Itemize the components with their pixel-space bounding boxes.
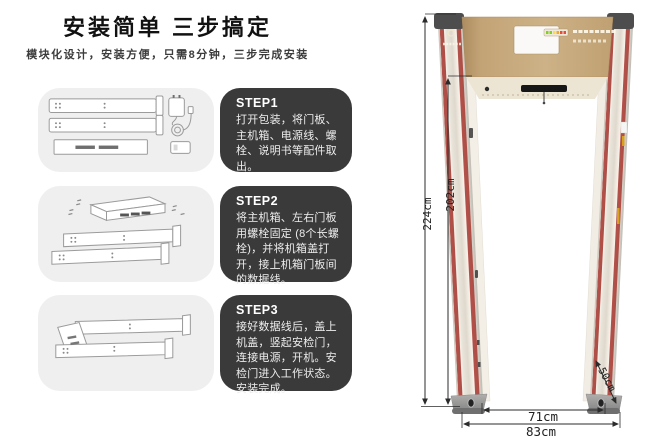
inner-width-label: 71cm [528,409,558,424]
left-top-cap [434,13,464,29]
step2-illustration-panel [38,186,214,282]
right-foot [586,394,622,414]
step1-text-panel: STEP1 打开包装，将门板、主机箱、电源线、螺栓、说明书等配件取出。 [220,88,352,172]
pillar-sticker [621,122,627,133]
step2-text-panel: STEP2 将主机箱、左右门板用螺栓固定 (8个长螺栓)，并将机箱盖打开，接上机… [220,186,352,282]
outer-width-label: 83cm [526,424,556,439]
step2-label: STEP2 [236,194,344,208]
inner-height-label: 202cm [444,178,457,211]
step2-text: 将主机箱、左右门板用螺栓固定 (8个长螺栓)，并将机箱盖打开，接上机箱门板间的数… [236,211,344,289]
step2-row: STEP2 将主机箱、左右门板用螺栓固定 (8个长螺栓)，并将机箱盖打开，接上机… [38,186,352,282]
installation-guide-section: 安装简单 三步搞定 模块化设计，安装方便，只需8分钟，三步完成安装 STEP1 … [0,0,370,442]
page-subtitle: 模块化设计，安装方便，只需8分钟，三步完成安装 [0,46,335,62]
assembly-illustration [48,191,204,277]
step1-label: STEP1 [236,96,344,110]
page-title: 安装简单 三步搞定 [0,10,335,42]
step3-label: STEP3 [236,303,344,317]
unpacking-illustration [48,95,204,165]
step1-text: 打开包装，将门板、主机箱、电源线、螺栓、说明书等配件取出。 [236,113,344,175]
step1-illustration-panel [38,88,214,172]
led-indicator-bar [544,29,568,36]
overhead-sensor-bar [521,85,567,92]
step1-row: STEP1 打开包装，将门板、主机箱、电源线、螺栓、说明书等配件取出。 [38,88,352,172]
step3-text-panel: STEP3 接好数据线后，盖上机盖，竖起安检门，连接电源，开机。安检门进入工作状… [220,295,352,391]
step3-row: STEP3 接好数据线后，盖上机盖，竖起安检门，连接电源，开机。安检门进入工作状… [38,295,352,391]
ir-sensor-dot [485,87,489,91]
step3-text: 接好数据线后，盖上机盖，竖起安检门，连接电源，开机。安检门进入工作状态。安装完成… [236,320,344,398]
finish-illustration [48,304,204,382]
steps-list: STEP1 打开包装，将门板、主机箱、电源线、螺栓、说明书等配件取出。 [38,88,352,391]
outer-height-label: 224cm [421,197,434,230]
security-gate-diagram: 224cm 202cm 50cm 71cm 83cm [420,0,653,442]
step3-illustration-panel [38,295,214,391]
